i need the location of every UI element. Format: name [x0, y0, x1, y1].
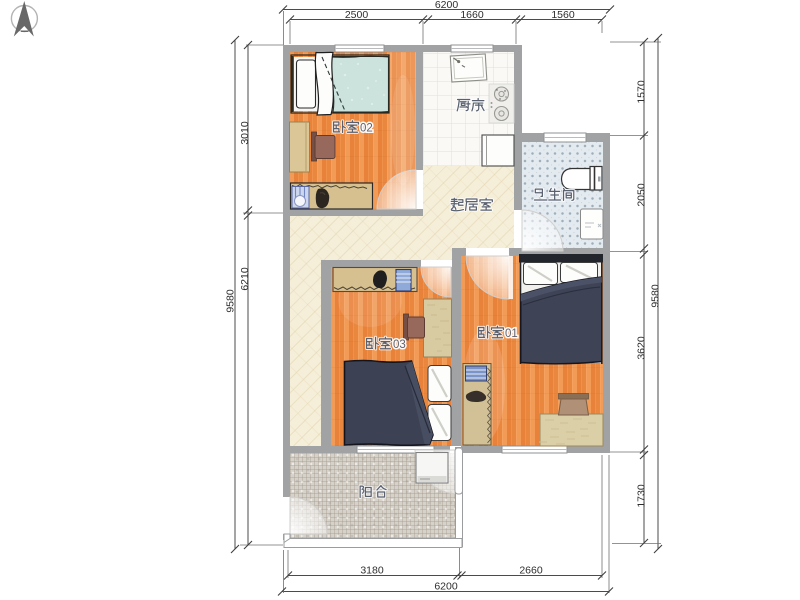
svg-text:1560: 1560: [551, 9, 575, 21]
svg-text:03: 03: [393, 339, 406, 351]
svg-text:1570: 1570: [636, 80, 648, 104]
svg-text:3180: 3180: [360, 565, 384, 577]
svg-text:6200: 6200: [434, 581, 458, 593]
svg-text:3620: 3620: [636, 336, 648, 360]
svg-text:02: 02: [360, 123, 373, 135]
svg-text:3010: 3010: [239, 121, 251, 145]
svg-text:1730: 1730: [636, 484, 648, 508]
svg-text:6200: 6200: [435, 0, 459, 11]
svg-text:1660: 1660: [460, 9, 484, 21]
svg-text:2660: 2660: [519, 565, 543, 577]
svg-text:01: 01: [505, 328, 518, 340]
svg-text:2050: 2050: [636, 183, 648, 207]
svg-text:9580: 9580: [650, 284, 662, 308]
svg-text:2500: 2500: [345, 9, 369, 21]
svg-text:6210: 6210: [239, 267, 251, 291]
svg-text:9580: 9580: [225, 289, 237, 313]
